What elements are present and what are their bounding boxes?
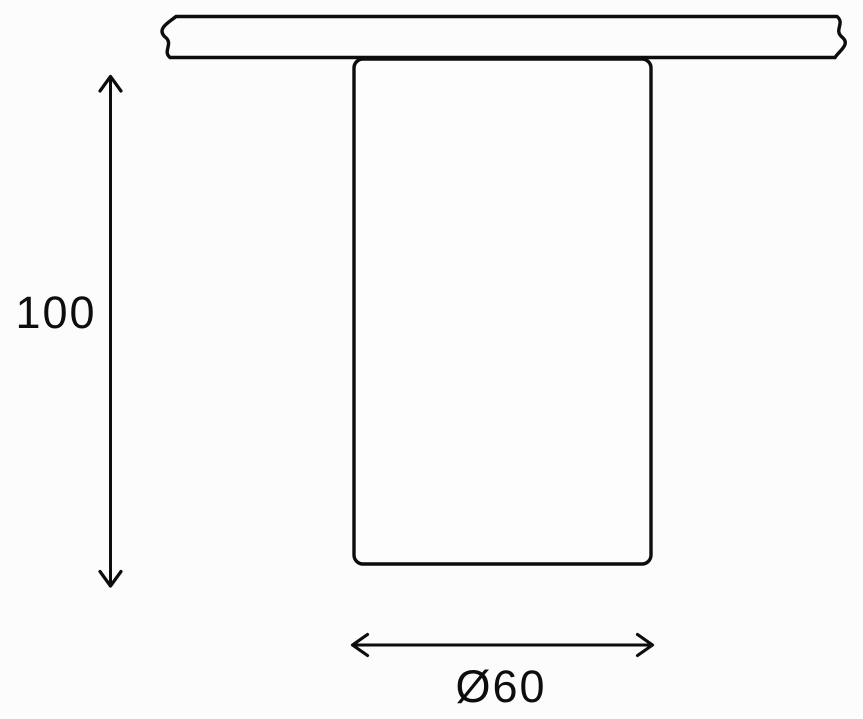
drawing-canvas: 100 Ø60 — [0, 0, 863, 719]
height-dimension: 100 — [15, 77, 121, 587]
diameter-dimension: Ø60 — [353, 635, 653, 713]
height-dimension-label: 100 — [15, 287, 96, 338]
ceiling-section — [162, 17, 845, 58]
diameter-dimension-label: Ø60 — [455, 661, 546, 712]
technical-drawing: 100 Ø60 — [0, 0, 863, 719]
fixture-body — [354, 59, 651, 564]
